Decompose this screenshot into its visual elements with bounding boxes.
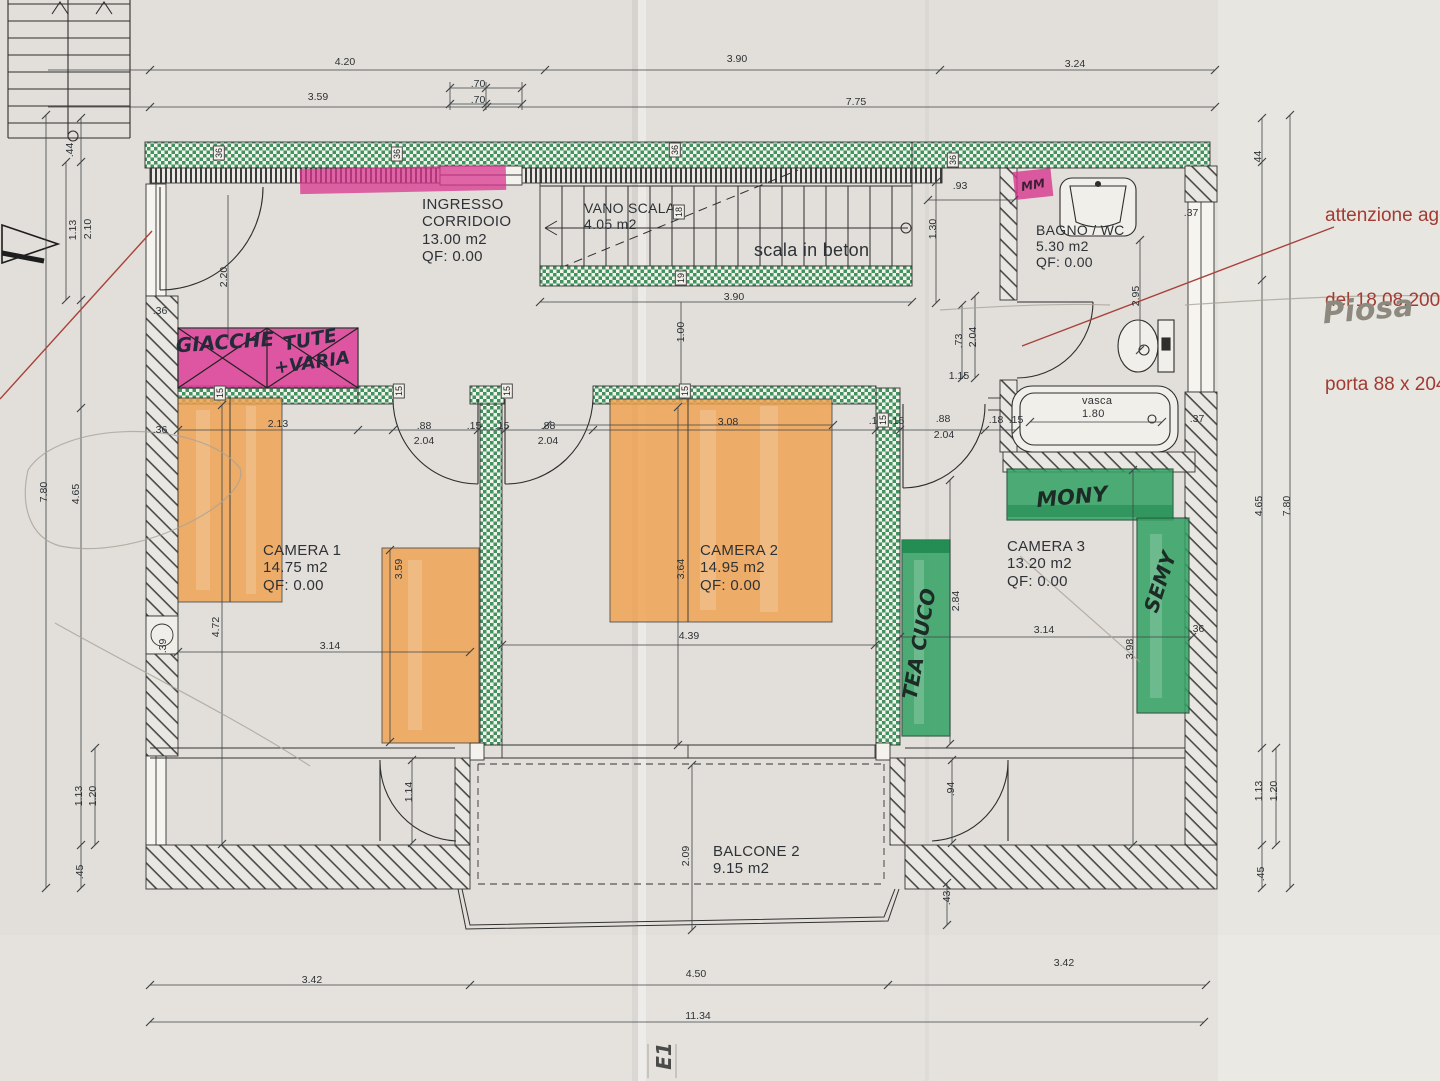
dimension-label: .70 [471, 94, 486, 106]
wall-thickness-tag: 36 [669, 142, 681, 157]
toilet [1118, 320, 1158, 372]
dimension-label: .88 [936, 413, 951, 425]
dimension-label: 1.20 [1268, 781, 1280, 801]
dimension-label: 3.90 [727, 53, 747, 65]
wall-thickness-tag: 15 [393, 383, 405, 398]
room-label-balcone-2: BALCONE 29.15 m2 [713, 843, 800, 878]
dimension-label: 2.04 [934, 429, 954, 441]
dimension-label: .15 [1009, 414, 1024, 426]
dimension-label: .43 [941, 891, 953, 906]
room-label-vasca: vasca1.80 [1082, 395, 1112, 421]
room-label-camera-1: CAMERA 114.75 m2QF: 0.00 [263, 542, 341, 594]
dimension-label: 3.24 [1065, 58, 1085, 70]
dimension-label: .44 [64, 143, 76, 158]
dimension-label: .18 [989, 414, 1004, 426]
dimension-label: 4.65 [70, 484, 82, 504]
dimension-label: .88 [541, 420, 556, 432]
room-label-ingresso: INGRESSOCORRIDOIO13.00 m2QF: 0.00 [422, 196, 511, 266]
green-wardrobe-semy [1137, 518, 1189, 713]
dimension-label: 4.65 [1253, 496, 1265, 516]
dimension-label: .88 [417, 420, 432, 432]
dimension-label: 1.15 [949, 370, 969, 382]
wall-thickness-tag: 15 [877, 412, 889, 427]
wall-thickness-tag: 36 [213, 145, 225, 160]
dimension-label: .15 [890, 415, 905, 427]
dimension-label: 2.13 [268, 418, 288, 430]
dimension-label: 3.90 [724, 291, 744, 303]
wall-thickness-tag: 19 [675, 270, 687, 285]
pink-marker-strip [300, 165, 506, 194]
dimension-label: .37 [1184, 207, 1199, 219]
scanned-floor-plan: attenzione agg del 18.08.2008 porta 88 x… [0, 0, 1440, 1081]
dimension-label: 1.30 [927, 219, 939, 239]
dimension-label: 1.20 [87, 786, 99, 806]
dimension-label: 4.50 [686, 968, 706, 980]
dimension-label: 3.42 [1054, 957, 1074, 969]
revision-note: attenzione agg del 18.08.2008 porta 88 x… [1325, 146, 1440, 427]
dimension-label: 2.84 [950, 591, 962, 611]
wall-thickness-tag: 15 [679, 383, 691, 398]
handwritten-note: E1 [652, 1042, 676, 1070]
dimension-label: .37 [1190, 413, 1205, 425]
dimension-label: 3.98 [1124, 639, 1136, 659]
dimension-label: .73 [953, 334, 965, 349]
floor-plan-drawing [0, 0, 1440, 1081]
room-label-bagno-wc: BAGNO / WC5.30 m2QF: 0.00 [1036, 222, 1125, 271]
dimension-label: 2.04 [967, 327, 979, 347]
dimension-label: 4.72 [210, 617, 222, 637]
dimension-label: .70 [471, 78, 486, 90]
dimension-label: .15 [495, 420, 510, 432]
dimension-label: .15 [467, 420, 482, 432]
revision-note-line1: attenzione agg [1325, 202, 1440, 230]
dimension-label: 7.75 [846, 96, 866, 108]
wall-thickness-tag: 36 [947, 152, 959, 167]
dimension-label: .36 [153, 305, 168, 317]
dimension-label: 3.14 [1034, 624, 1054, 636]
dimension-label: .94 [945, 782, 957, 797]
dimension-label: 2.10 [82, 219, 94, 239]
dimension-label: .39 [157, 639, 169, 654]
dimension-label: 2.04 [414, 435, 434, 447]
dimension-label: 1.13 [67, 220, 79, 240]
dimension-label: 2.20 [218, 267, 230, 287]
revision-note-line3: porta 88 x 204 [1325, 371, 1440, 399]
dimension-label: 4.39 [679, 630, 699, 642]
dimension-label: 1.14 [403, 782, 415, 802]
dimension-label: 2.95 [1130, 286, 1142, 306]
dimension-label: 3.14 [320, 640, 340, 652]
dimension-label: 4.20 [335, 56, 355, 68]
wall-thickness-tag: 15 [501, 383, 513, 398]
dimension-label: .44 [1252, 151, 1264, 166]
dimension-label: 1.00 [675, 322, 687, 342]
dimension-label: 3.08 [718, 416, 738, 428]
dimension-label: 7.80 [38, 482, 50, 502]
dimension-label: .45 [1255, 867, 1267, 882]
dimension-label: 2.09 [680, 846, 692, 866]
dimension-label: 3.59 [308, 91, 328, 103]
dimension-label: 3.59 [393, 559, 405, 579]
dimension-label: 7.80 [1281, 496, 1293, 516]
wall-thickness-tag: 18 [673, 204, 685, 219]
dimension-label: 3.64 [675, 559, 687, 579]
room-label-camera-3: CAMERA 313.20 m2QF: 0.00 [1007, 538, 1085, 590]
room-label-camera-2: CAMERA 214.95 m2QF: 0.00 [700, 542, 778, 594]
dimension-label: 11.34 [685, 1010, 711, 1022]
wall-thickness-tag: 15 [214, 385, 226, 400]
room-label-scala-note: scala in beton [754, 240, 869, 261]
wall-thickness-tag: 36 [391, 146, 403, 161]
dimension-label: 2.04 [538, 435, 558, 447]
dimension-label: 1.13 [73, 786, 85, 806]
room-label-vano-scala: VANO SCALA4.05 m2 [584, 200, 675, 232]
dimension-label: 3.42 [302, 974, 322, 986]
dimension-label: .36 [153, 424, 168, 436]
dimension-label: 1.13 [1253, 781, 1265, 801]
dimension-label: .45 [74, 865, 86, 880]
dimension-label: .93 [953, 180, 968, 192]
dimension-label: .36 [1190, 623, 1205, 635]
